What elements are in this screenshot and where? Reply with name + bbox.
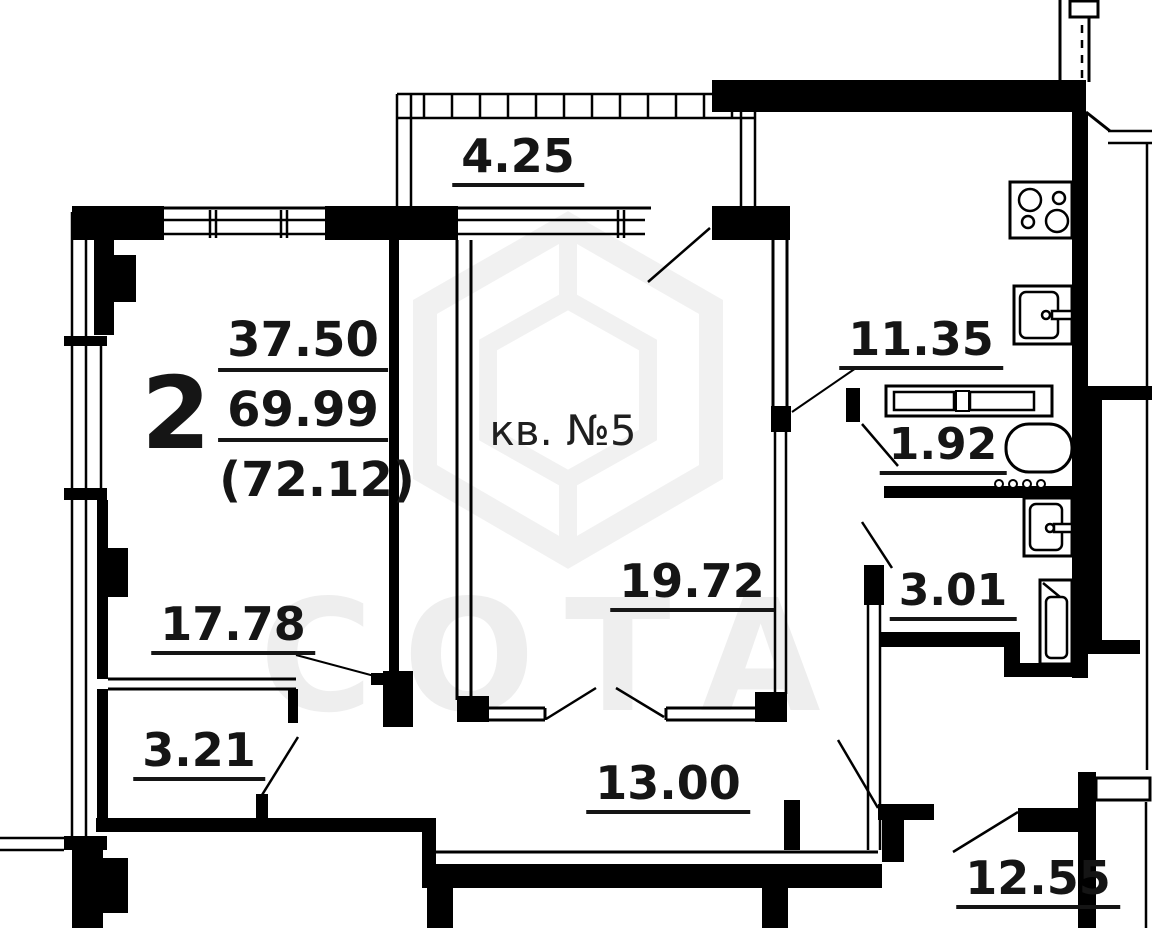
room-label-living-room: 17.78 [151,601,315,655]
room-label-storage: 3.21 [133,727,265,781]
room-label-bedroom: 19.72 [610,558,774,612]
room-label-adjacent-room: 12.55 [956,855,1120,909]
kitchen-stove-icon [1010,182,1072,238]
bathtub-icon [1040,580,1072,664]
wardrobe-icon [886,386,1052,416]
balcony-door-leaf [648,228,710,282]
total-area-label: 69.99 [218,386,388,442]
unit-number-label: кв. №5 [489,410,636,452]
room-label-bathroom: 3.01 [890,569,1017,621]
kitchen-sink-icon [1014,286,1072,344]
living-area-label: 37.50 [218,316,388,372]
corridor-door-leaf [838,740,878,808]
entrance-door-leaf [953,812,1018,852]
room-label-kitchen: 11.35 [839,316,1003,370]
watermark-logo [425,225,711,555]
bathroom-door-leaf [862,522,892,568]
floor-plan: СОТА [0,0,1152,928]
toilet-icon [1006,424,1072,472]
rooms-count-label: 2 [141,364,211,464]
room-label-hallway: 13.00 [586,760,750,814]
room-label-wc: 1.92 [880,423,1007,475]
room-label-balcony: 4.25 [452,133,584,187]
vent-shaft [1060,0,1098,82]
bathroom-sink-icon [1024,498,1072,556]
area-with-balcony-label: (72.12) [219,456,415,504]
